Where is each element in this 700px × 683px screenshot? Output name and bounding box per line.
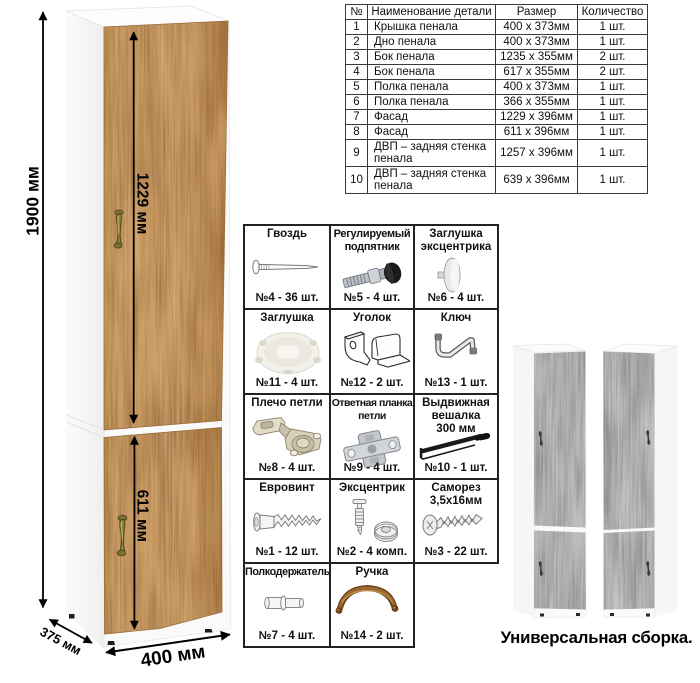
svg-text:1229 мм: 1229 мм [134, 173, 151, 235]
svg-text:611 мм: 611 мм [134, 490, 151, 542]
svg-text:375 мм: 375 мм [38, 624, 84, 658]
svg-text:1900 мм: 1900 мм [23, 166, 43, 236]
